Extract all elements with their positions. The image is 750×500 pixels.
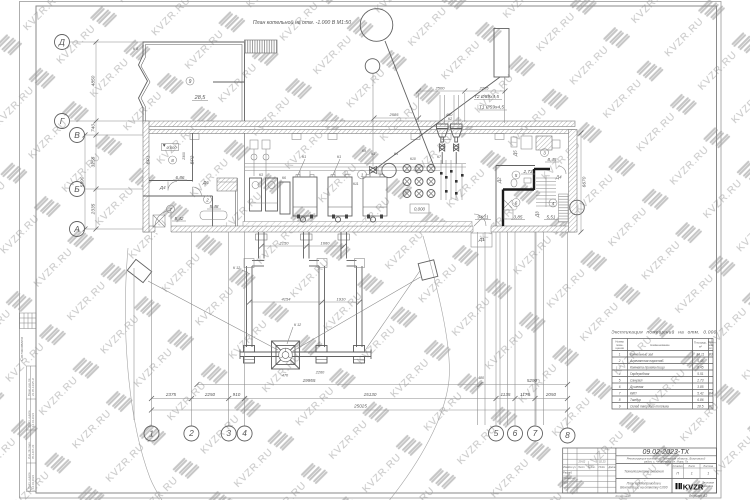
svg-text:Подп.: Подп. xyxy=(599,465,606,469)
svg-text:Стадия: Стадия xyxy=(673,464,684,468)
svg-text:КИП: КИП xyxy=(630,392,637,396)
svg-text:1: 1 xyxy=(691,472,693,476)
svg-text:9: 9 xyxy=(189,79,192,85)
svg-text:4154: 4154 xyxy=(282,297,292,302)
svg-text:2205: 2205 xyxy=(479,86,490,91)
svg-text:8,45: 8,45 xyxy=(548,157,557,162)
svg-text:23.05-14/25-И: 23.05-14/25-И xyxy=(31,378,35,396)
svg-text:Б: Б xyxy=(74,184,80,194)
svg-text:5.42: 5.42 xyxy=(697,392,703,396)
svg-text:2050: 2050 xyxy=(545,392,557,397)
svg-text:Формат А3: Формат А3 xyxy=(689,494,708,498)
svg-text:2375: 2375 xyxy=(165,392,177,397)
svg-text:6,86: 6,86 xyxy=(176,175,185,180)
svg-text:84.11: 84.11 xyxy=(697,353,705,357)
svg-text:ВР2: ВР2 xyxy=(190,155,195,164)
svg-text:Д4: Д4 xyxy=(159,185,166,190)
svg-text:6670: 6670 xyxy=(582,176,588,187)
svg-text:8.45: 8.45 xyxy=(697,366,703,370)
svg-text:4: 4 xyxy=(242,428,247,438)
svg-text:0,000: 0,000 xyxy=(166,145,177,150)
svg-text:Технологические решения: Технологические решения xyxy=(624,470,664,474)
svg-text:3,85: 3,85 xyxy=(514,215,523,220)
svg-text:2150: 2150 xyxy=(279,241,290,246)
svg-text:4: 4 xyxy=(619,372,621,376)
svg-text:1910: 1910 xyxy=(337,297,347,302)
svg-text:3255: 3255 xyxy=(91,156,97,167)
svg-text:5.51: 5.51 xyxy=(697,372,703,376)
svg-text:0,000: 0,000 xyxy=(414,207,426,212)
svg-text:район, с. Чебаклейка, ул. Мира: район, с. Чебаклейка, ул. Мира, 7а xyxy=(643,460,688,464)
svg-text:К7: К7 xyxy=(437,155,441,159)
svg-text:Экспликация помещений на от: Экспликация помещений на отм. 0.000 xyxy=(611,329,716,335)
svg-text:5: 5 xyxy=(515,173,518,178)
svg-text:Комната приема пищи: Комната приема пищи xyxy=(630,366,665,370)
svg-text:7: 7 xyxy=(619,392,621,396)
svg-text:Д5: Д5 xyxy=(513,150,518,157)
svg-text:25-02: 25-02 xyxy=(578,460,586,464)
svg-text:6: 6 xyxy=(515,201,518,206)
svg-text:8: 8 xyxy=(565,430,570,440)
svg-text:Санузел: Санузел xyxy=(630,379,643,383)
svg-text:Д: Д xyxy=(58,37,65,47)
svg-text:KVZR: KVZR xyxy=(683,482,704,491)
svg-text:Листов: Листов xyxy=(702,464,713,468)
svg-text:Гардеробная: Гардеробная xyxy=(630,372,650,376)
svg-text:5: 5 xyxy=(619,379,621,383)
svg-text:Лист: Лист xyxy=(687,464,696,468)
svg-text:28,5: 28,5 xyxy=(194,95,207,101)
svg-text:5290: 5290 xyxy=(527,378,538,383)
svg-text:2: 2 xyxy=(188,428,194,438)
svg-text:1: 1 xyxy=(707,472,709,476)
svg-text:3.85: 3.85 xyxy=(697,385,703,389)
svg-text:В3: В3 xyxy=(709,353,713,357)
svg-text:Д2: Д2 xyxy=(497,177,502,184)
svg-text:7: 7 xyxy=(533,428,538,438)
svg-text:4: 4 xyxy=(552,201,555,206)
svg-text:6: 6 xyxy=(513,428,518,438)
svg-text:15130: 15130 xyxy=(364,392,377,397)
svg-text:7: 7 xyxy=(169,207,172,212)
svg-text:2500: 2500 xyxy=(435,86,446,91)
svg-text:Д4: Д4 xyxy=(555,175,562,180)
svg-text:05-1407-23: 05-1407-23 xyxy=(31,444,35,459)
svg-text:6.86: 6.86 xyxy=(697,398,703,402)
svg-text:Копировал: Копировал xyxy=(616,494,631,498)
svg-text:02.23: 02.23 xyxy=(599,460,606,464)
svg-text:2: 2 xyxy=(618,359,621,363)
svg-text:2.73: 2.73 xyxy=(696,379,703,383)
svg-text:3: 3 xyxy=(226,428,231,438)
svg-text:Душевая: Душевая xyxy=(629,385,644,389)
svg-text:14.03.2023: 14.03.2023 xyxy=(31,475,35,489)
svg-text:К9: К9 xyxy=(362,149,366,153)
svg-text:К1: К1 xyxy=(337,155,341,159)
svg-text:480: 480 xyxy=(478,376,484,380)
svg-text:К 12: К 12 xyxy=(233,266,240,270)
svg-text:9: 9 xyxy=(619,405,621,409)
svg-text:К 12: К 12 xyxy=(294,323,301,327)
svg-text:Наименование: Наименование xyxy=(650,343,670,347)
svg-text:Тамбур: Тамбур xyxy=(630,398,641,402)
svg-text:Д3: Д3 xyxy=(535,211,540,218)
svg-text:910: 910 xyxy=(233,392,241,397)
svg-text:1660: 1660 xyxy=(321,241,331,246)
svg-text:К2: К2 xyxy=(448,117,452,121)
svg-text:П: П xyxy=(676,472,679,476)
svg-text:В: В xyxy=(74,130,80,140)
svg-text:8: 8 xyxy=(619,398,621,402)
svg-text:2585: 2585 xyxy=(389,112,400,117)
svg-text:В1: В1 xyxy=(709,405,713,409)
svg-text:3: 3 xyxy=(543,151,546,156)
svg-text:1175: 1175 xyxy=(520,392,530,397)
svg-text:К10: К10 xyxy=(410,157,416,161)
svg-text:Вентиляции на отметку 0,000: Вентиляции на отметку 0,000 xyxy=(620,485,667,489)
svg-text:28.5: 28.5 xyxy=(696,405,703,409)
svg-text:ГИП: ГИП xyxy=(563,481,568,485)
svg-text:К3: К3 xyxy=(259,173,263,177)
svg-text:Агрегатная пароснаб.: Агрегатная пароснаб. xyxy=(629,359,664,363)
svg-text:5,42: 5,42 xyxy=(175,216,184,221)
svg-text:3: 3 xyxy=(619,366,621,370)
svg-text:Разраб.: Разраб. xyxy=(563,471,573,475)
svg-text:5.48: 5.48 xyxy=(697,359,703,363)
svg-text:Д6: Д6 xyxy=(202,180,209,185)
svg-text:План котельной на отм. -1.000: План котельной на отм. -1.000 В М1:50 xyxy=(253,19,351,26)
svg-text:щения: щения xyxy=(615,346,624,350)
svg-text:ВР1: ВР1 xyxy=(146,155,151,164)
svg-text:Т1 Ø59х4,5: Т1 Ø59х4,5 xyxy=(479,105,504,111)
svg-text:Склад твердого топлива: Склад твердого топлива xyxy=(630,405,669,409)
svg-text:К 8: К 8 xyxy=(133,47,138,51)
svg-text:энергия: энергия xyxy=(703,485,714,488)
svg-text:Дата: Дата xyxy=(608,465,616,469)
svg-text:Согласовано: Согласовано xyxy=(19,336,24,361)
svg-text:4850: 4850 xyxy=(91,75,97,86)
svg-text:2300: 2300 xyxy=(182,152,186,161)
svg-text:Т2 Ø59х4,5: Т2 Ø59х4,5 xyxy=(474,94,499,100)
svg-text:Д1: Д1 xyxy=(478,237,485,242)
svg-text:Тепловая: Тепловая xyxy=(702,481,714,485)
svg-text:оп.: оп. xyxy=(709,346,713,350)
svg-text:2250: 2250 xyxy=(204,392,216,397)
svg-text:К4: К4 xyxy=(394,152,398,156)
svg-text:№док.: №док. xyxy=(588,465,596,469)
svg-text:А: А xyxy=(73,224,80,234)
svg-text:2335: 2335 xyxy=(91,203,97,215)
svg-text:5,51: 5,51 xyxy=(547,215,556,220)
svg-text:6: 6 xyxy=(619,385,621,389)
svg-text:К6: К6 xyxy=(282,176,286,180)
svg-text:2,73: 2,73 xyxy=(523,169,533,174)
svg-text:14.03.2023: 14.03.2023 xyxy=(31,413,35,427)
svg-text:25025: 25025 xyxy=(353,404,367,409)
svg-text:19955: 19955 xyxy=(303,378,316,383)
svg-text:8: 8 xyxy=(171,158,174,163)
svg-text:5,48: 5,48 xyxy=(210,204,219,209)
svg-text:Котельный зал: Котельный зал xyxy=(630,353,653,357)
svg-text:Кол.уч: Кол.уч xyxy=(568,465,576,469)
svg-text:09.02-2023-ТХ: 09.02-2023-ТХ xyxy=(642,449,689,456)
svg-text:В4: В4 xyxy=(709,392,713,396)
svg-text:2: 2 xyxy=(205,198,209,203)
svg-text:2260: 2260 xyxy=(315,371,325,375)
svg-text:1: 1 xyxy=(619,353,621,357)
svg-text:Лист: Лист xyxy=(577,465,586,469)
svg-text:К1: К1 xyxy=(302,155,306,159)
svg-text:К11: К11 xyxy=(353,182,359,186)
svg-text:470: 470 xyxy=(282,374,289,378)
svg-text:1: 1 xyxy=(149,428,154,438)
svg-text:740: 740 xyxy=(91,124,97,132)
svg-text:К1: К1 xyxy=(371,152,375,156)
svg-text:5: 5 xyxy=(494,428,499,438)
svg-text:Проверил: Проверил xyxy=(563,476,575,480)
svg-text:м²: м² xyxy=(699,345,702,349)
svg-text:1135: 1135 xyxy=(501,392,511,397)
svg-text:5590: 5590 xyxy=(80,176,86,187)
